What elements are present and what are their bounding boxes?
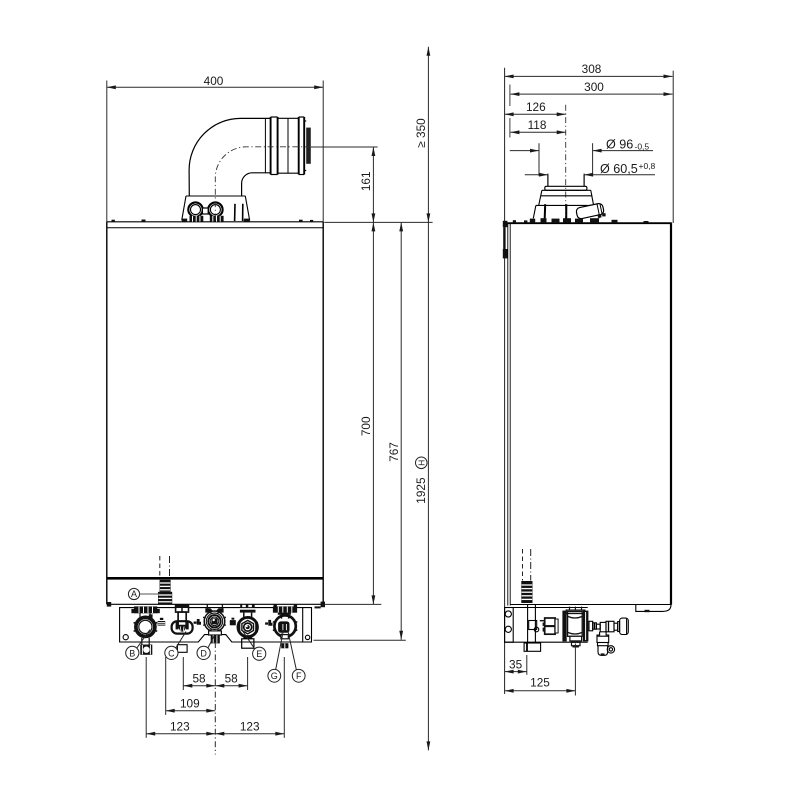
svg-text:700: 700 [359, 416, 373, 436]
svg-text:126: 126 [526, 100, 546, 114]
svg-text:≥ 350: ≥ 350 [414, 118, 428, 148]
svg-text:1925: 1925 [414, 477, 428, 504]
svg-text:58: 58 [225, 671, 239, 685]
svg-text:D: D [200, 648, 207, 658]
svg-text:58: 58 [192, 671, 206, 685]
svg-text:F: F [296, 671, 302, 681]
svg-text:767: 767 [387, 442, 401, 462]
svg-text:A: A [131, 589, 137, 599]
svg-text:H: H [418, 460, 427, 466]
svg-text:G: G [271, 671, 278, 681]
svg-text:123: 123 [170, 720, 190, 734]
svg-text:Ø 96: Ø 96 [606, 138, 633, 152]
svg-text:B: B [129, 648, 135, 658]
svg-text:125: 125 [530, 676, 550, 690]
svg-text:E: E [256, 649, 262, 659]
svg-text:35: 35 [509, 657, 523, 671]
svg-text:161: 161 [359, 171, 373, 191]
svg-text:Ø 60,5: Ø 60,5 [600, 162, 638, 176]
svg-text:308: 308 [582, 62, 602, 76]
svg-text:-0,5: -0,5 [635, 141, 650, 151]
svg-text:118: 118 [528, 118, 547, 132]
svg-text:C: C [168, 648, 175, 658]
svg-text:+0,8: +0,8 [639, 161, 656, 171]
svg-text:400: 400 [204, 74, 224, 88]
svg-text:300: 300 [584, 80, 604, 94]
svg-text:123: 123 [240, 720, 260, 734]
svg-text:109: 109 [180, 696, 200, 710]
